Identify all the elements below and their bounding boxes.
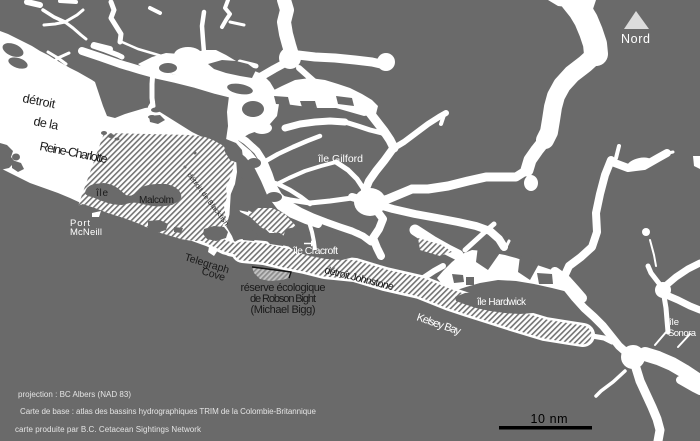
- svg-text:10 nm: 10 nm: [531, 412, 568, 426]
- svg-text:(Michael Bigg): (Michael Bigg): [251, 304, 316, 316]
- svg-text:projection : BC Albers (NAD 83: projection : BC Albers (NAD 83): [18, 390, 131, 399]
- svg-text:Malcolm: Malcolm: [139, 195, 174, 206]
- svg-text:île Gilford: île Gilford: [317, 153, 363, 165]
- svg-text:Sonora: Sonora: [668, 328, 697, 339]
- svg-text:McNeill: McNeill: [70, 227, 102, 238]
- svg-text:Nord: Nord: [621, 32, 650, 46]
- svg-text:île: île: [95, 188, 108, 199]
- svg-text:île: île: [668, 317, 679, 328]
- svg-text:île Hardwick: île Hardwick: [476, 297, 527, 308]
- svg-text:carte produite par B.C. Cetace: carte produite par B.C. Cetacean Sightin…: [15, 425, 202, 434]
- svg-text:île Cracroft: île Cracroft: [292, 245, 338, 257]
- svg-text:Carte de base : atlas des bass: Carte de base : atlas des bassins hydrog…: [20, 407, 317, 416]
